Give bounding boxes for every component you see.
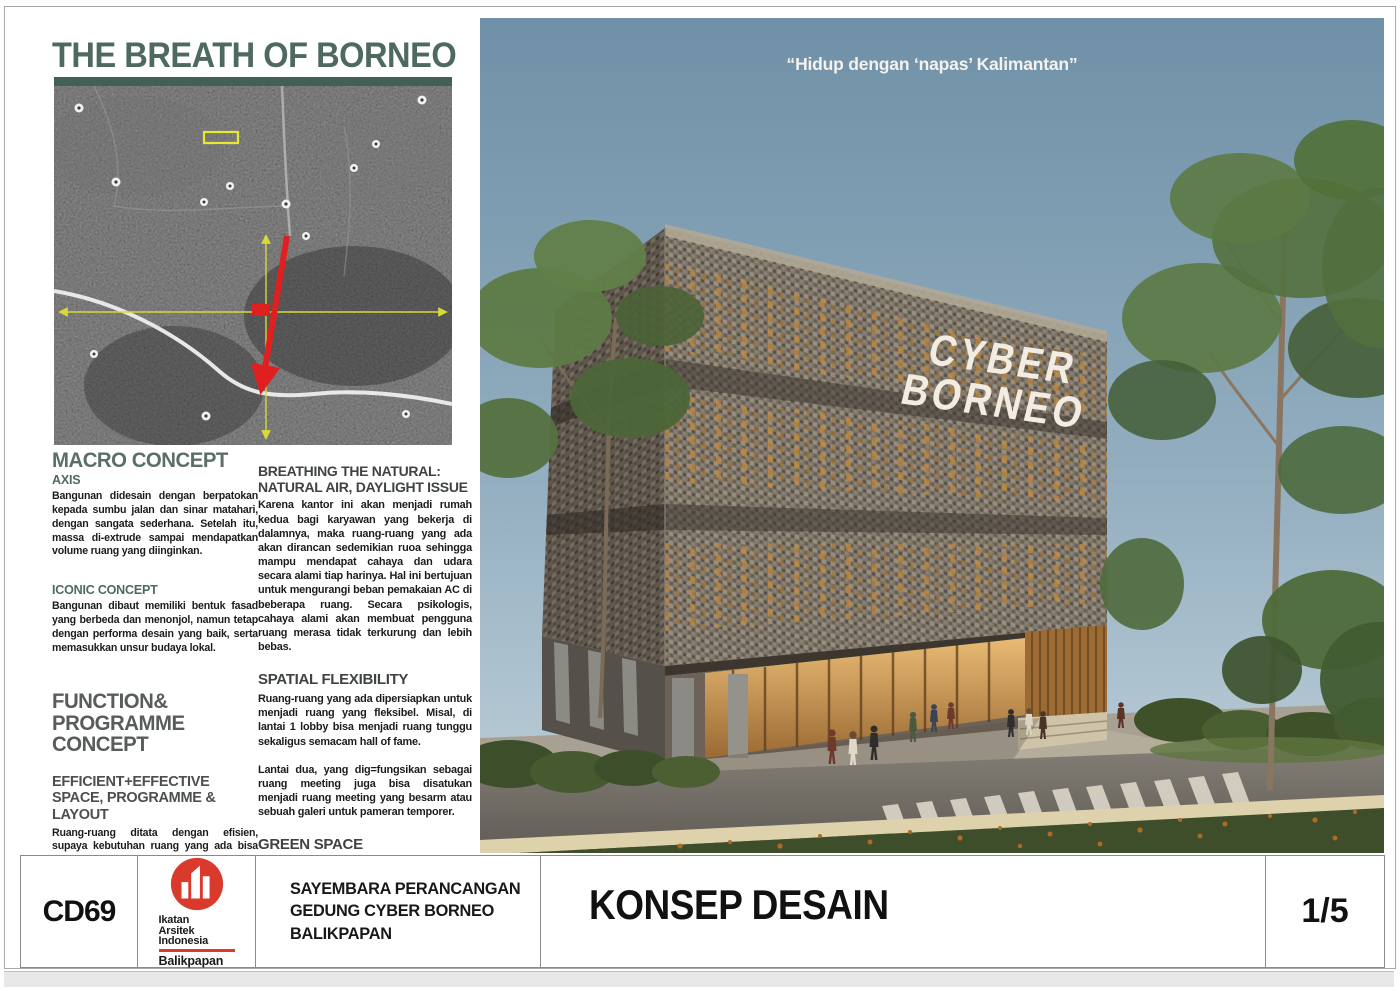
competition-title: SAYEMBARA PERANCANGAN GEDUNG CYBER BORNE… bbox=[290, 878, 530, 944]
building-rendering: “Hidup dengan ‘napas’ Kalimantan” CYBER … bbox=[480, 18, 1384, 853]
macro-concept-heading: MACRO CONCEPT bbox=[52, 450, 252, 471]
title-underline bbox=[54, 77, 452, 86]
green-space-heading: GREEN SPACE bbox=[258, 837, 472, 854]
tagline-quote: “Hidup dengan ‘napas’ Kalimantan” bbox=[480, 54, 1384, 75]
efficient-effective-subheading: EFFICIENT+EFFECTIVE SPACE, PROGRAMME & L… bbox=[52, 774, 258, 824]
site-map bbox=[54, 86, 452, 445]
sheet-title: KONSEP DESAIN bbox=[589, 881, 889, 929]
iai-logo-cell: Ikatan Arsitek Indonesia Balikpapan bbox=[138, 856, 256, 967]
spatial-flexibility-heading: SPATIAL FLEXIBILITY bbox=[258, 672, 472, 689]
logo-text-line4: Balikpapan bbox=[159, 954, 235, 968]
breathing-natural-body: Karena kantor ini akan menjadi rumah ked… bbox=[258, 498, 472, 654]
iai-logo: Ikatan Arsitek Indonesia Balikpapan bbox=[159, 855, 235, 967]
timber-slat-wall bbox=[1025, 625, 1107, 720]
function-programme-heading: FUNCTION& PROGRAMME CONCEPT bbox=[52, 691, 198, 755]
bottom-margin-strip bbox=[4, 971, 1394, 987]
logo-text-line3: Indonesia bbox=[159, 936, 235, 946]
iconic-concept-heading: ICONIC CONCEPT bbox=[52, 583, 258, 597]
breathing-natural-heading: BREATHING THE NATURAL: NATURAL AIR, DAYL… bbox=[258, 464, 472, 495]
presentation-board: { "board": { "title": "THE BREATH OF BOR… bbox=[0, 0, 1400, 991]
iai-logo-icon bbox=[168, 855, 226, 913]
axis-body: Bangunan didesain dengan berpatokan kepa… bbox=[52, 490, 258, 559]
logo-tagline-strip bbox=[159, 949, 235, 952]
page-title: THE BREATH OF BORNEO bbox=[52, 36, 456, 76]
map-site-block bbox=[252, 304, 270, 316]
axis-heading: AXIS bbox=[52, 473, 258, 487]
title-block-bar: CD69 Ikatan Arsitek Indonesia Balikpapan… bbox=[20, 855, 1385, 968]
iconic-concept-body: Bangunan dibaut memiliki bentuk fasad ya… bbox=[52, 600, 258, 655]
participant-code: CD69 bbox=[21, 856, 138, 967]
spatial-flexibility-body-1: Ruang-ruang yang ada dipersiapkan untuk … bbox=[258, 692, 472, 749]
page-number: 1/5 bbox=[1266, 856, 1384, 967]
spatial-flexibility-body-2: Lantai dua, yang dig=fungsikan sebagai r… bbox=[258, 763, 472, 820]
